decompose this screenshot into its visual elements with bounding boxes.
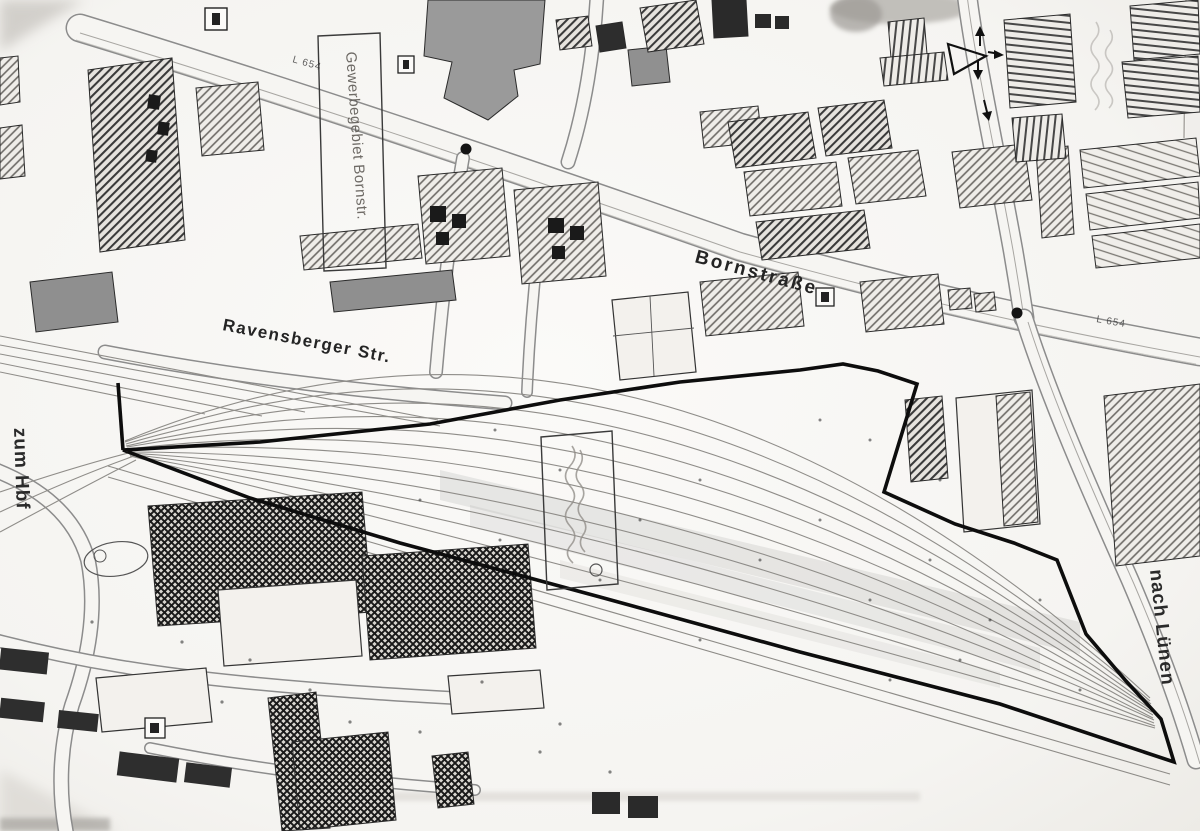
building-hatched: [88, 58, 185, 252]
building-industrial: [362, 544, 536, 660]
building-outline-large: [612, 292, 696, 380]
map-symbol-icon: [145, 718, 165, 738]
building-hatched: [196, 82, 264, 156]
building-hatched: [1104, 384, 1200, 566]
junction-dot-icon: [461, 144, 472, 155]
map-symbol-icon: [205, 8, 227, 30]
map-symbol-icon: [398, 56, 414, 73]
map-symbol-icon: [816, 288, 834, 306]
building-solid: [30, 272, 118, 332]
scanned-city-map: Gewerbegebiet Bornstr. Bornstraße Ravens…: [0, 0, 1200, 831]
junction-dot-icon: [1012, 308, 1023, 319]
map-canvas: Gewerbegebiet Bornstr. Bornstraße Ravens…: [0, 0, 1200, 831]
direction-label-zum-hbf: zum Hbf: [9, 427, 33, 510]
